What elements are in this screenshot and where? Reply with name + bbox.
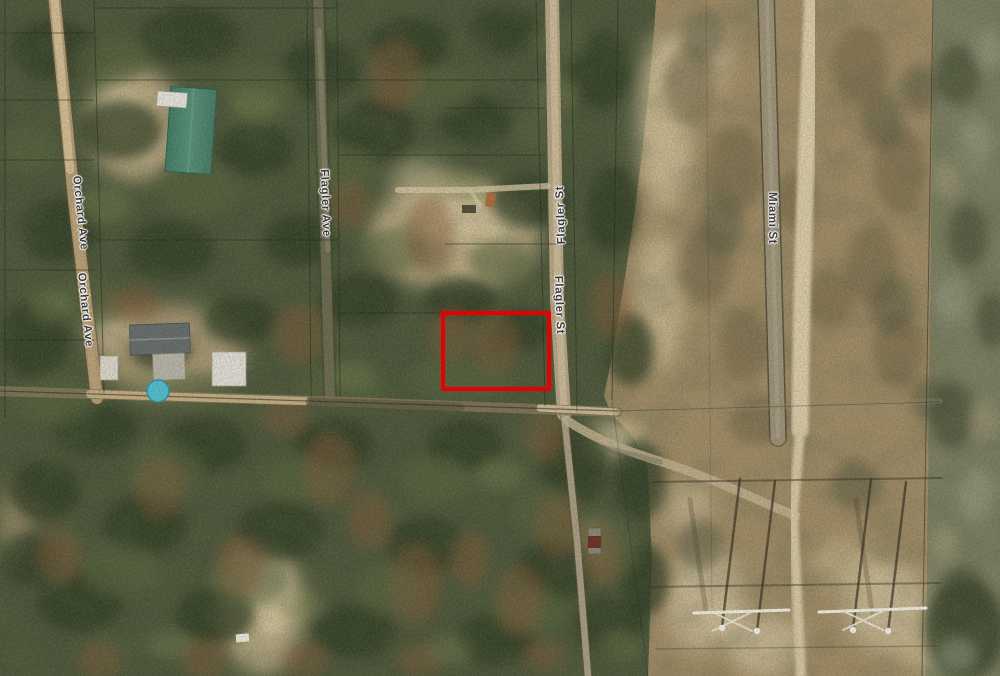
map-canvas[interactable]: Orchard Ave Orchard Ave Flagler Ave Flag… [0, 0, 1000, 676]
aerial-imagery [0, 0, 1000, 676]
grain-light-texture [0, 0, 1000, 676]
